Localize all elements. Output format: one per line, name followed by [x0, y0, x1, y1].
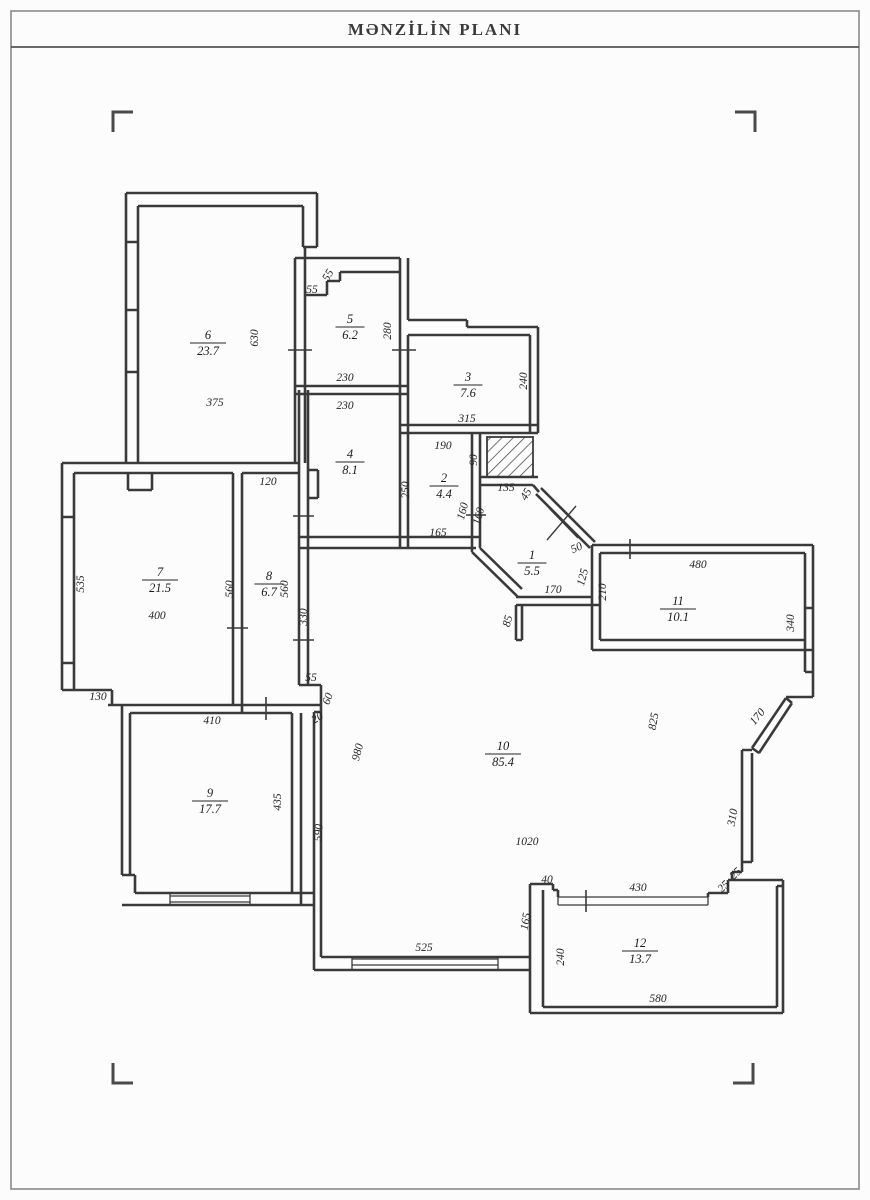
dimension-label: 210 — [597, 583, 609, 601]
room-area: 23.7 — [197, 344, 220, 358]
dimension-label: 330 — [298, 608, 310, 627]
room-number: 12 — [634, 936, 647, 950]
dimension-label: 400 — [148, 610, 166, 622]
corner-mark-top-right — [735, 112, 755, 132]
dimension-label: 375 — [205, 397, 224, 409]
dimension-label: 535 — [75, 575, 87, 593]
dimension-label: 130 — [89, 691, 107, 703]
dimension-label: 135 — [497, 482, 515, 494]
plan-labels: 6303755555230230280240315190902501601601… — [75, 267, 797, 1005]
dimension-label: 170 — [544, 584, 562, 596]
room-area: 13.7 — [629, 952, 652, 966]
dimension-label: 1020 — [516, 836, 539, 848]
room-label-7: 721.5 — [142, 565, 178, 595]
dimension-label: 630 — [249, 329, 261, 347]
dimension-label: 580 — [649, 993, 667, 1005]
dimension-label: 980 — [350, 742, 366, 762]
room-label-3: 37.6 — [454, 370, 483, 400]
room-number: 5 — [347, 312, 353, 326]
room-label-11: 1110.1 — [660, 594, 696, 624]
page-title: MƏNZİLİN PLANI — [348, 20, 522, 39]
room-number: 6 — [205, 328, 212, 342]
room-label-1: 15.5 — [518, 548, 547, 578]
dimension-label: 240 — [555, 948, 567, 966]
dimension-label: 40 — [541, 874, 553, 886]
room-number: 7 — [157, 565, 164, 579]
room-area: 6.7 — [261, 585, 277, 599]
room-area: 8.1 — [342, 463, 358, 477]
dimension-label: 55 — [305, 672, 317, 684]
dimension-label: 55 — [306, 284, 318, 296]
dimension-label: 435 — [272, 793, 284, 811]
dimension-label: 240 — [518, 372, 530, 390]
dimension-label: 340 — [785, 614, 797, 633]
dimension-label: 525 — [415, 942, 433, 954]
dimension-label: 560 — [279, 580, 291, 598]
room-area: 85.4 — [492, 755, 514, 769]
walls — [62, 193, 813, 1013]
dimension-label: 230 — [336, 400, 354, 412]
room-area: 6.2 — [342, 328, 358, 342]
dimension-label: 85 — [501, 614, 516, 628]
dimension-label: 480 — [689, 559, 707, 571]
dimension-label: 50 — [569, 540, 585, 556]
room-label-9: 917.7 — [192, 786, 228, 816]
dimension-label: 280 — [382, 322, 394, 340]
corner-mark-top-left — [113, 112, 133, 132]
dimension-label: 20 — [310, 710, 326, 726]
room-number: 9 — [207, 786, 214, 800]
room-number: 3 — [464, 370, 471, 384]
room-area: 21.5 — [149, 581, 171, 595]
dimension-label: 310 — [725, 808, 740, 828]
corner-marks — [113, 112, 755, 1083]
dimension-label: 190 — [434, 440, 452, 452]
room-number: 4 — [347, 447, 353, 461]
plan-header: MƏNZİLİN PLANI — [11, 20, 859, 47]
dimension-label: 160 — [471, 506, 487, 526]
room-number: 8 — [266, 569, 273, 583]
dimension-label: 560 — [224, 580, 236, 598]
room-area: 7.6 — [460, 386, 476, 400]
room-label-10: 1085.4 — [485, 739, 521, 769]
dimension-label: 125 — [575, 567, 591, 587]
room-label-12: 1213.7 — [622, 936, 658, 966]
room-area: 5.5 — [524, 564, 540, 578]
shaft-hatch — [487, 437, 533, 477]
dimension-label: 825 — [647, 712, 662, 731]
room-number: 1 — [529, 548, 535, 562]
room-area: 4.4 — [436, 487, 452, 501]
room-number: 11 — [672, 594, 684, 608]
dimension-label: 165 — [429, 527, 447, 539]
plan-page: MƏNZİLİN PLANI 6303755555230230280240315… — [0, 0, 870, 1200]
room-area: 17.7 — [199, 802, 222, 816]
corner-mark-bottom-left — [113, 1063, 133, 1083]
dimension-label: 410 — [203, 715, 221, 727]
dimension-label: 170 — [748, 706, 768, 727]
room-label-5: 56.2 — [336, 312, 365, 342]
room-area: 10.1 — [667, 610, 689, 624]
dimension-label: 120 — [259, 476, 277, 488]
dimension-label: 90 — [468, 454, 480, 466]
dimension-label: 250 — [400, 481, 412, 499]
dimension-label: 45 — [518, 486, 534, 502]
dimension-label: 60 — [321, 691, 336, 706]
dimension-label: 590 — [312, 823, 325, 841]
room-label-4: 48.1 — [336, 447, 365, 477]
corner-mark-bottom-right — [733, 1063, 753, 1083]
floor-plan: MƏNZİLİN PLANI 6303755555230230280240315… — [0, 0, 870, 1200]
room-number: 10 — [497, 739, 510, 753]
room-label-2: 24.4 — [430, 471, 459, 501]
dimension-label: 315 — [457, 413, 476, 425]
dimension-label: 230 — [336, 372, 354, 384]
room-label-6: 623.7 — [190, 328, 226, 358]
dimension-label: 430 — [629, 882, 647, 894]
room-number: 2 — [441, 471, 447, 485]
dimension-label: 160 — [455, 501, 471, 521]
